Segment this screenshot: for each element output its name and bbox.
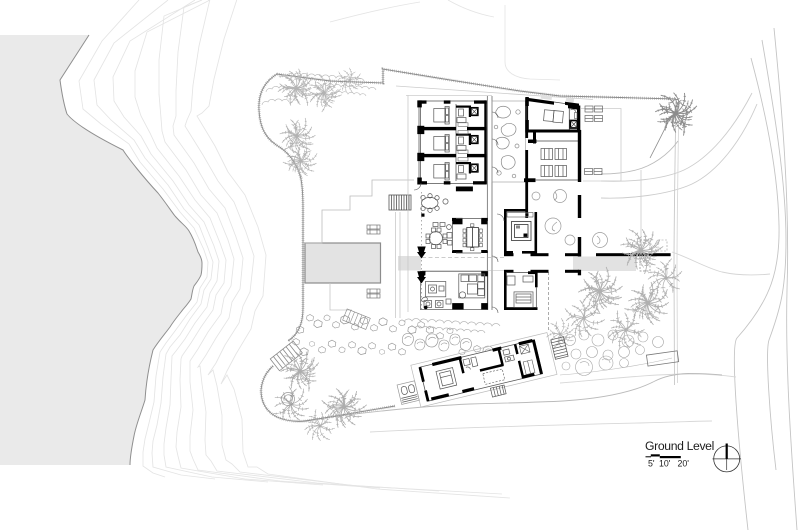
svg-text:Ground Level: Ground Level (645, 439, 714, 453)
svg-text:20': 20' (678, 459, 690, 469)
svg-text:5': 5' (648, 459, 655, 469)
svg-text:10': 10' (659, 459, 671, 469)
